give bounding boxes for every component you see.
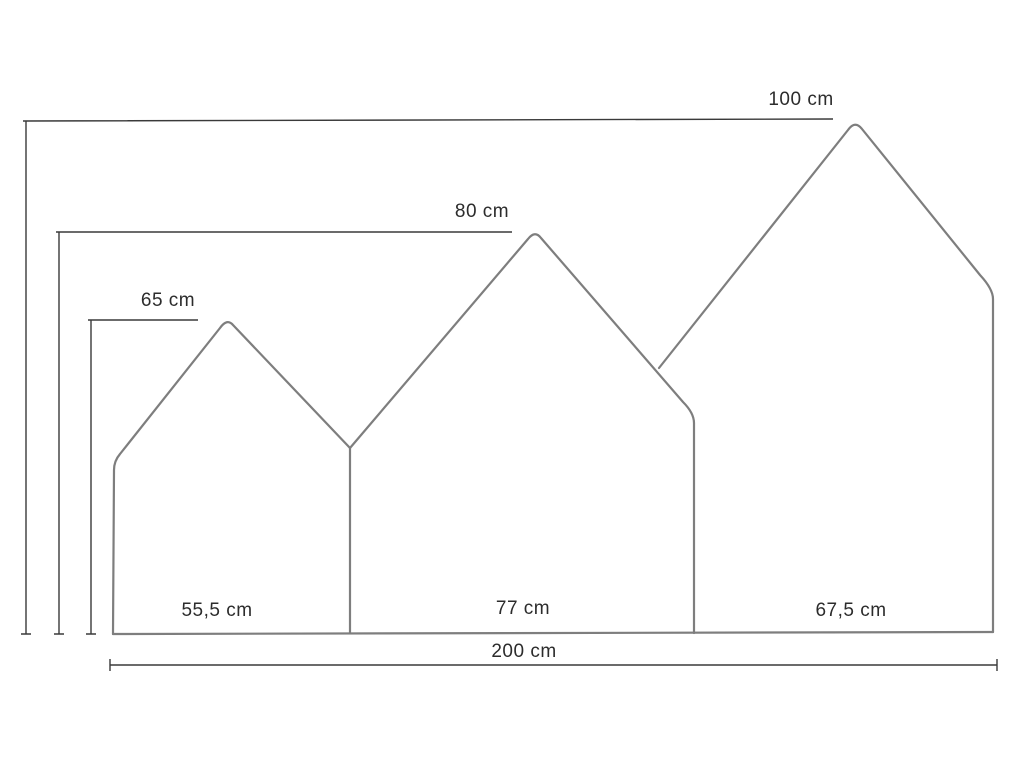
dimension-labels: 100 cm 80 cm 65 cm 55,5 cm 77 cm 67,5 cm… bbox=[141, 89, 887, 662]
width-label-left-panel: 55,5 cm bbox=[181, 600, 252, 621]
width-label-middle-panel: 77 cm bbox=[496, 598, 550, 619]
base-line bbox=[113, 632, 993, 634]
total-width-label: 200 cm bbox=[491, 641, 556, 662]
dimension-diagram: 100 cm 80 cm 65 cm 55,5 cm 77 cm 67,5 cm… bbox=[0, 0, 1024, 768]
left-panel-outline bbox=[113, 322, 350, 634]
dimension-drawing-page: 100 cm 80 cm 65 cm 55,5 cm 77 cm 67,5 cm… bbox=[0, 0, 1024, 768]
panel-outlines bbox=[113, 125, 993, 634]
height-100-dimension-line bbox=[21, 119, 833, 634]
height-label-middle-panel: 80 cm bbox=[455, 201, 509, 222]
height-80-dimension-line bbox=[54, 232, 512, 634]
height-65-dimension-line bbox=[86, 320, 198, 634]
right-panel-outline bbox=[659, 125, 993, 632]
height-label-left-panel: 65 cm bbox=[141, 290, 195, 311]
width-label-right-panel: 67,5 cm bbox=[815, 600, 886, 621]
height-label-right-panel: 100 cm bbox=[768, 89, 833, 110]
middle-panel-outline bbox=[350, 234, 694, 633]
